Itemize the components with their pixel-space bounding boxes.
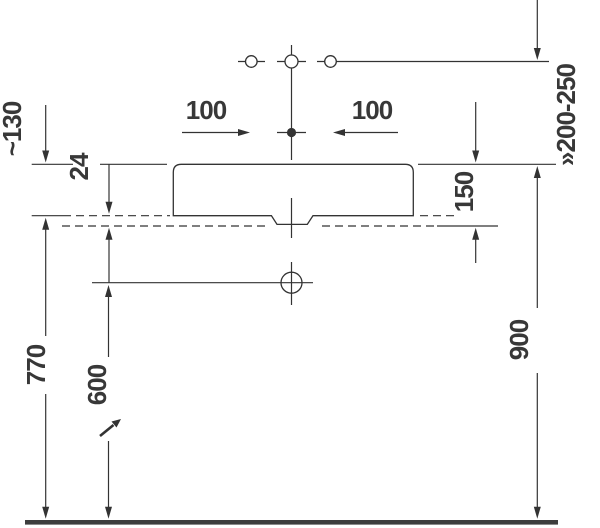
center-reference-dot (287, 128, 296, 137)
arrowhead-left-icon (333, 129, 345, 136)
dim-label-100-right: 100 (352, 95, 393, 125)
dim-label-150: 150 (449, 171, 479, 212)
console-plate-lines (32, 216, 498, 226)
technical-drawing-canvas: 100 100 ~130 24 »200-250 (0, 0, 600, 528)
drain-outlet (92, 262, 313, 305)
arrowhead-down-icon (42, 151, 49, 163)
arrowhead-down-icon (105, 507, 112, 519)
arrowhead-down-icon (106, 202, 113, 214)
basin-profile (173, 164, 413, 224)
dim-label-24: 24 (64, 152, 94, 180)
tap-hole-right-icon (325, 56, 337, 68)
dimension-24: 24 (64, 145, 113, 283)
dim-label-200-250: »200-250 (551, 64, 581, 166)
dimension-900: 900 (504, 166, 541, 519)
arrowhead-down-icon (472, 151, 479, 163)
arrowhead-down-icon (534, 507, 541, 519)
arrowhead-down-icon (534, 48, 541, 60)
dim-label-600: 600 (82, 364, 112, 405)
floor-line (25, 520, 558, 525)
arrowhead-down-icon (42, 507, 49, 519)
tap-hole-center-icon (285, 55, 298, 68)
arrow-shaft (100, 425, 114, 436)
dimension-130: ~130 (0, 101, 49, 162)
dim-label-130: ~130 (0, 101, 27, 156)
tap-hole-left-icon (246, 56, 258, 68)
dim-label-100-left: 100 (186, 95, 227, 125)
arrowhead-right-icon (238, 129, 250, 136)
up-right-arrow-icon (100, 419, 121, 436)
dim-label-900: 900 (504, 319, 534, 360)
washbasin-dimension-drawing: 100 100 ~130 24 »200-250 (0, 0, 600, 528)
dimension-200-250: »200-250 (534, 0, 581, 166)
dimension-770: 770 (21, 218, 51, 519)
tap-hole-axis (238, 45, 549, 160)
dimension-150: 150 (449, 102, 479, 263)
dim-label-770: 770 (21, 344, 51, 385)
dimension-100-100: 100 100 (182, 95, 398, 137)
washbasin-outline (173, 164, 413, 238)
dimension-600: 600 (82, 285, 121, 519)
